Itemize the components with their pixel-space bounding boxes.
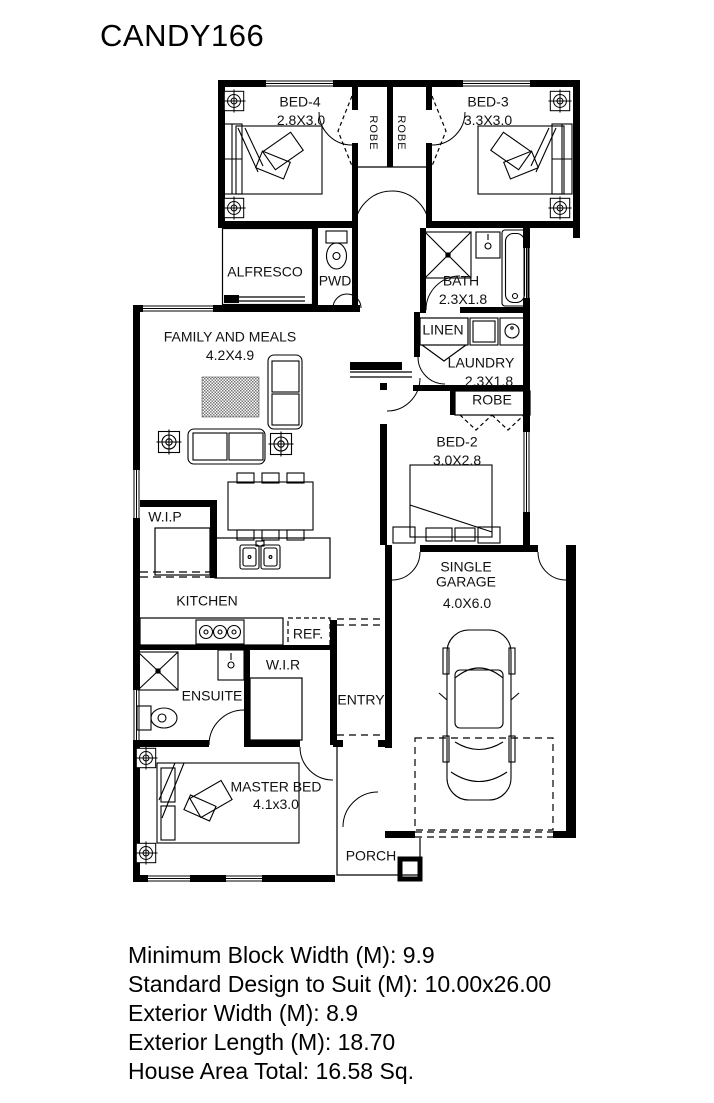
room-label-ensuite: ENSUITE (182, 688, 243, 703)
front-door (343, 792, 378, 827)
spec-exterior-width: Exterior Width (M): 8.9 (128, 999, 551, 1028)
garage-rear-door (538, 552, 566, 580)
room-label-pwd: PWD. (319, 273, 356, 288)
laundry-door (418, 357, 445, 384)
laundry-tub-icon (500, 318, 524, 345)
side-table-icon (157, 430, 182, 455)
bed2-door (387, 378, 420, 411)
kitchen-island (215, 538, 330, 578)
window-master-bottom-2 (226, 875, 262, 882)
room-dims-family: 4.2X4.9 (206, 347, 254, 363)
room-label-master: MASTER BED (230, 779, 321, 794)
bathtub-icon (502, 230, 528, 306)
kitchen-bench (140, 618, 283, 645)
room-label-bath: BATH (443, 273, 479, 288)
room-label-porch: PORCH (346, 848, 397, 863)
room-dims-garage: 4.0X6.0 (443, 595, 491, 611)
kitchen-sink-icon (240, 541, 280, 569)
room-label-garage: SINGLE GARAGE (429, 560, 503, 591)
room-label-entry: ENTRY (337, 692, 384, 707)
ensuite-door (209, 710, 244, 745)
side-table-icon (269, 432, 294, 457)
ensuite-toilet-icon (137, 706, 177, 730)
car-icon (439, 630, 519, 800)
room-label-kitchen: KITCHEN (176, 593, 237, 608)
robe-bed2-bifold-door (492, 415, 524, 430)
vanity-icon (218, 650, 244, 680)
spec-standard-design: Standard Design to Suit (M): 10.00x26.00 (128, 970, 551, 999)
robe-bed4-bifold-door (338, 96, 352, 166)
cooktop-icon (196, 620, 244, 644)
basin-icon (476, 232, 500, 258)
spec-block: Minimum Block Width (M): 9.9 Standard De… (128, 941, 551, 1086)
room-label-bed4: BED-4 (279, 94, 320, 109)
room-label-wip: W.I.P (148, 509, 181, 524)
window-master-bottom-1 (148, 875, 190, 882)
room-label-ref: REF. (293, 626, 323, 641)
window-family-left (133, 470, 140, 518)
bedside-lamp-icon (222, 89, 245, 112)
window-bed4 (266, 80, 333, 87)
room-label-bed2: BED-2 (436, 434, 477, 449)
room-dims-bed2: 3.0X2.8 (433, 452, 481, 468)
room-label-laundry: LAUNDRY (448, 355, 515, 370)
bed3-door (432, 112, 465, 145)
ensuite-shower-icon (138, 652, 178, 690)
room-label-wir: W.I.R (266, 657, 300, 672)
window-bed2-right (523, 432, 530, 512)
room-dims-bath: 2.3X1.8 (439, 291, 487, 307)
porch-column (400, 859, 420, 879)
master-door (300, 747, 333, 780)
hall-double-door (355, 191, 392, 228)
floor-plan-page: { "title": "CANDY166", "rooms": { "bed4"… (0, 0, 714, 1103)
bed2-icon (393, 465, 500, 543)
shower-icon (425, 232, 471, 278)
room-label-robe-bed2: ROBE (472, 392, 512, 407)
bedside-lamp-icon (222, 196, 245, 219)
spec-house-area: House Area Total: 16.58 Sq. (128, 1057, 551, 1086)
bedside-lamp-icon (548, 196, 571, 219)
robe-bed3-bifold-door (432, 96, 446, 166)
spec-exterior-length: Exterior Length (M): 18.70 (128, 1028, 551, 1057)
driveway-apron-dashed (415, 738, 553, 830)
room-label-family: FAMILY AND MEALS (164, 329, 297, 344)
room-label-robe-bed4: ROBE (367, 115, 379, 150)
room-label-robe-bed3: ROBE (395, 115, 407, 150)
room-label-alfresco: ALFRESCO (227, 264, 302, 279)
wip-shelf (155, 528, 210, 575)
bed3-icon (478, 124, 572, 194)
interior-lines (140, 96, 553, 879)
garage-entry-door (392, 552, 420, 580)
dining-table-icon (228, 473, 313, 540)
bedside-lamp-icon (134, 746, 157, 769)
floor-plan-drawing (0, 0, 714, 1103)
toilet-icon (326, 231, 347, 269)
washing-machine-icon (470, 318, 498, 345)
bedside-lamp-icon (548, 89, 571, 112)
bed4-icon (222, 124, 322, 194)
room-label-linen: LINEN (422, 322, 463, 337)
room-dims-master: 4.1x3.0 (253, 796, 299, 812)
wir-shelf (250, 678, 302, 740)
room-dims-laundry: 2.3X1.8 (465, 373, 513, 389)
robe-bed2-bifold-door (460, 415, 492, 430)
windows (133, 80, 530, 882)
room-label-bed3: BED-3 (467, 94, 508, 109)
spec-minimum-block-width: Minimum Block Width (M): 9.9 (128, 941, 551, 970)
room-dims-bed4: 2.8X3.0 (277, 112, 325, 128)
room-dims-bed3: 3.3X3.0 (464, 112, 512, 128)
window-family-top (143, 305, 213, 312)
window-bed3 (463, 80, 530, 87)
rug (202, 377, 259, 417)
bedside-lamp-icon (134, 841, 157, 864)
